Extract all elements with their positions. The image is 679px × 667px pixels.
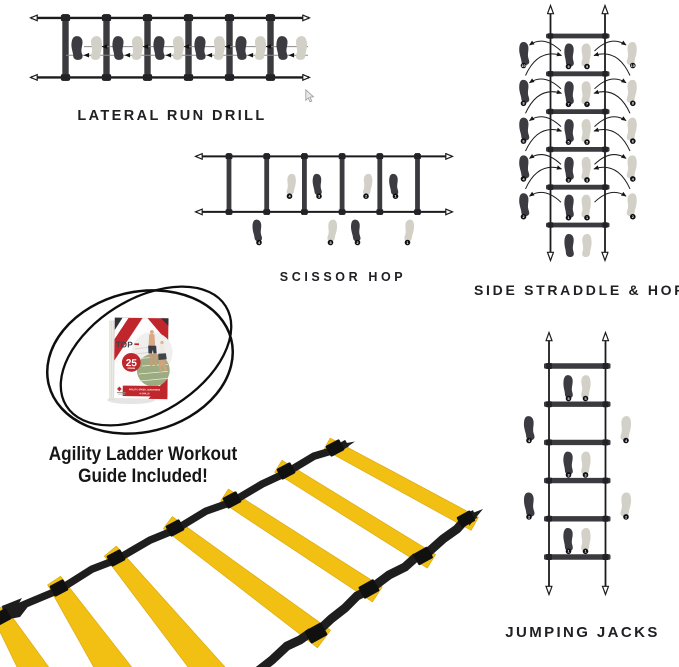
- svg-text:1: 1: [586, 216, 588, 220]
- svg-text:1: 1: [394, 195, 396, 199]
- svg-text:3: 3: [318, 195, 320, 199]
- svg-text:1: 1: [567, 550, 569, 554]
- svg-text:2: 2: [365, 195, 367, 199]
- svg-text:6: 6: [632, 140, 634, 144]
- svg-text:1: 1: [584, 550, 586, 554]
- svg-text:3: 3: [329, 241, 331, 245]
- svg-text:8: 8: [522, 102, 524, 106]
- svg-text:7: 7: [586, 103, 588, 107]
- svg-text:2: 2: [522, 215, 524, 219]
- svg-text:& DRILLS: & DRILLS: [139, 393, 150, 395]
- svg-text:1: 1: [567, 216, 569, 220]
- svg-text:9: 9: [586, 65, 588, 69]
- svg-text:2: 2: [356, 241, 358, 245]
- svg-text:7: 7: [567, 103, 569, 107]
- svg-text:9: 9: [567, 65, 569, 69]
- svg-text:2: 2: [625, 515, 627, 519]
- svg-text:TOP: TOP: [116, 340, 134, 349]
- svg-text:3: 3: [584, 473, 586, 477]
- svg-text:1: 1: [406, 241, 408, 245]
- svg-text:AGILITY, SPEED, QUICKNESS: AGILITY, SPEED, QUICKNESS: [129, 388, 161, 391]
- svg-text:5: 5: [567, 397, 569, 401]
- svg-text:3: 3: [567, 178, 569, 182]
- svg-text:5: 5: [586, 141, 588, 145]
- svg-text:10: 10: [521, 64, 525, 68]
- svg-text:2: 2: [528, 515, 530, 519]
- svg-text:6: 6: [522, 140, 524, 144]
- svg-text:25: 25: [126, 358, 138, 369]
- svg-text:5: 5: [567, 141, 569, 145]
- svg-text:3: 3: [586, 178, 588, 182]
- svg-text:5: 5: [584, 397, 586, 401]
- svg-text:8: 8: [632, 102, 634, 106]
- svg-text:10: 10: [631, 64, 635, 68]
- svg-text:3: 3: [567, 473, 569, 477]
- svg-text:2: 2: [632, 215, 634, 219]
